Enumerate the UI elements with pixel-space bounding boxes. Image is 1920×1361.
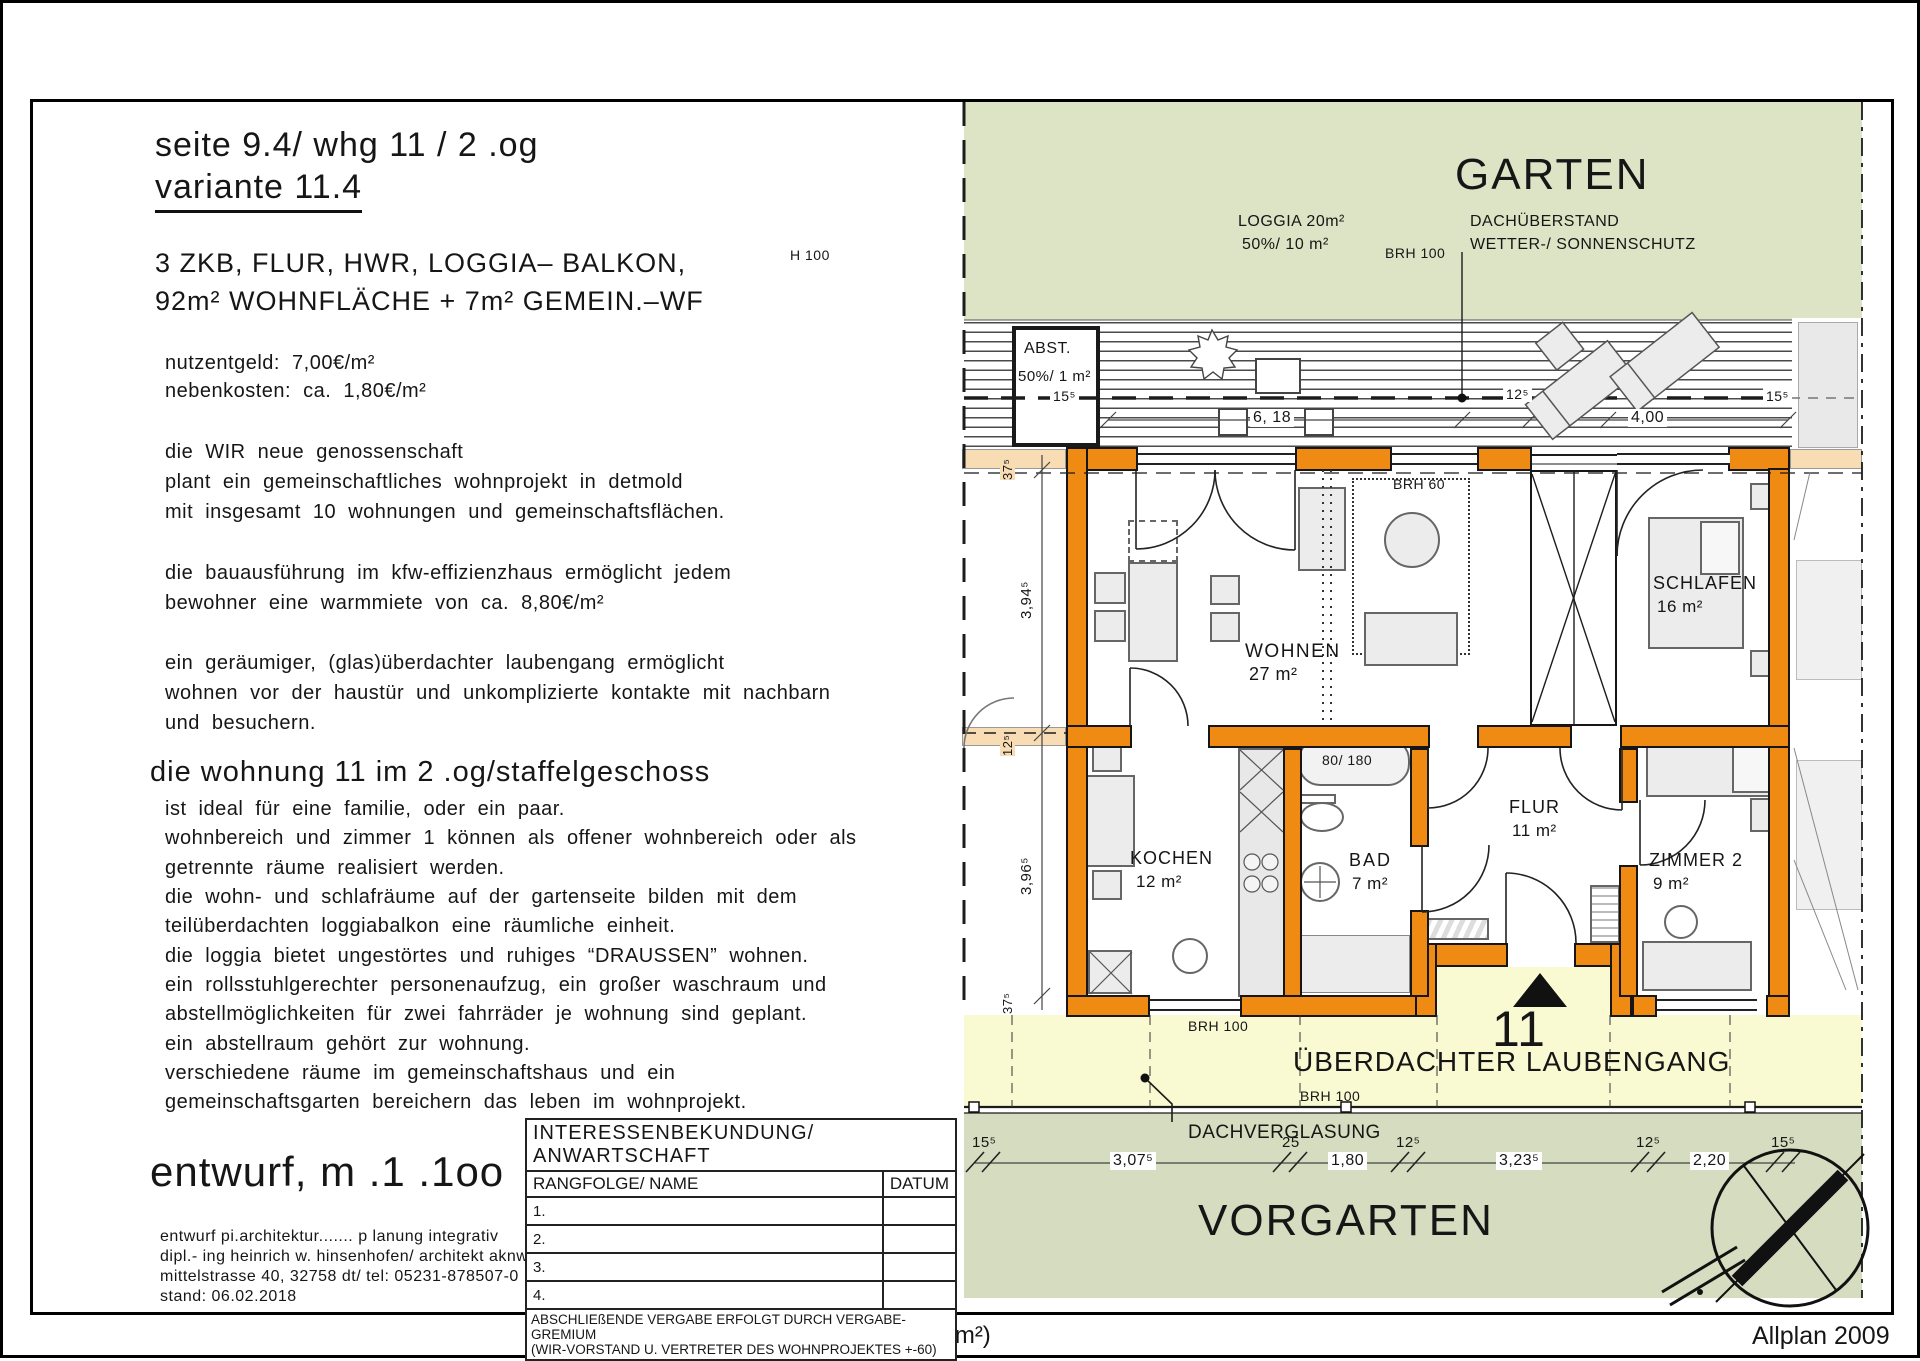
- table-note-1: ABSCHLIEßENDE VERGABE ERFOLGT DURCH VERG…: [531, 1312, 951, 1342]
- dim-label-bottom: 15⁵: [972, 1134, 996, 1151]
- bath-sink: [1300, 862, 1340, 902]
- room-size-zimmer2: 9 m²: [1653, 874, 1689, 894]
- wall: [1295, 447, 1392, 471]
- room-label-zimmer2: ZIMMER 2: [1649, 850, 1743, 871]
- paragraph-line: gemeinschaftsgarten bereichern das leben…: [165, 1091, 747, 1114]
- dim-label-bottom: 12⁵: [1396, 1134, 1420, 1151]
- window: [1657, 999, 1757, 1011]
- software-credit: Allplan 2009: [1752, 1322, 1890, 1351]
- paragraph-line: ein geräumiger, (glas)überdachter lauben…: [165, 652, 725, 675]
- room-label-schlafen: SCHLAFEN: [1653, 573, 1757, 594]
- room-label-kochen: KOCHEN: [1130, 848, 1213, 869]
- dim-label: 4,00: [1628, 409, 1667, 427]
- wall-flur-zimmer2: [1619, 748, 1638, 803]
- sheet-title-line1: seite 9.4/ whg 11 / 2 .og: [155, 126, 539, 165]
- chair-round: [1664, 905, 1698, 939]
- table-note-2: (WIR-VORSTAND U. VERTRETER DES WOHNPROJE…: [531, 1342, 951, 1357]
- paragraph-line: ein abstellraum gehört zur wohnung.: [165, 1033, 530, 1056]
- cost-line: nutzentgeld: 7,00€/m²: [165, 352, 375, 375]
- paragraph-line: ist ideal für eine familie, oder ein paa…: [165, 798, 565, 821]
- window: [1138, 453, 1295, 465]
- dim-label-bottom: 12⁵: [1636, 1134, 1660, 1151]
- side-table: [1210, 612, 1240, 642]
- wardrobe: [1642, 941, 1752, 991]
- brh-label: BRH 100: [1188, 1018, 1248, 1034]
- paragraph-line: mit insgesamt 10 wohnungen und gemeinsch…: [165, 501, 725, 524]
- brh-label: H 100: [790, 247, 830, 263]
- subtitle-line2: 92m² WOHNFLÄCHE + 7m² GEMEIN.–WF: [155, 286, 704, 317]
- dim-label-left: 3,94⁵: [1018, 578, 1035, 622]
- side-table: [1210, 575, 1240, 605]
- kitchen-sink: [1172, 938, 1208, 974]
- date-cell-4[interactable]: [883, 1281, 956, 1309]
- paragraph-line: wohnen vor der haustür und unkompliziert…: [165, 682, 830, 705]
- wall: [1632, 995, 1657, 1017]
- window: [1617, 453, 1730, 465]
- dachueberstand-label2: WETTER-/ SONNENSCHUTZ: [1470, 236, 1696, 254]
- sideboard: [1298, 487, 1346, 571]
- room-label-wohnen: WOHNEN: [1245, 641, 1341, 663]
- interest-table-col2: DATUM: [883, 1171, 956, 1197]
- interest-table-col1: RANGFOLGE/ NAME: [526, 1171, 883, 1197]
- dim-label-left: 37⁵: [1000, 993, 1015, 1014]
- laubengang-label: ÜBERDACHTER LAUBENGANG: [1293, 1046, 1730, 1078]
- sofa: [1128, 562, 1178, 662]
- neighbor-box-mid: [1796, 560, 1862, 680]
- sheet-title-line2: variante 11.4: [155, 168, 362, 213]
- dining-table: [1085, 775, 1135, 867]
- dim-label-bottom: 2,20: [1690, 1152, 1729, 1170]
- paragraph-line: ein rollsstuhlgerechter personenaufzug, …: [165, 974, 827, 997]
- pillow: [1700, 521, 1740, 575]
- coffee-table-dashed: [1128, 520, 1178, 562]
- interest-table: INTERESSENBEKUNDUNG/ ANWARTSCHAFT RANGFO…: [525, 1118, 957, 1361]
- rank-row-2[interactable]: 2.: [526, 1225, 883, 1253]
- plan-sheet: { "page": { "caption": "H/B = 210 / 297 …: [0, 0, 1920, 1358]
- loggia-label2: 50%/ 10 m²: [1242, 236, 1329, 254]
- paragraph-line: die WIR neue genossenschaft: [165, 441, 463, 464]
- window: [1392, 453, 1477, 465]
- date-cell-1[interactable]: [883, 1197, 956, 1225]
- credit-line: dipl.- ing heinrich w. hinsenhofen/ arch…: [160, 1248, 528, 1266]
- room-label-flur: FLUR: [1509, 797, 1560, 818]
- brh-label: BRH 100: [1385, 245, 1445, 261]
- dim-label-bottom: 1,80: [1328, 1152, 1367, 1170]
- room-label-bad: BAD: [1349, 850, 1392, 871]
- window: [1150, 999, 1240, 1011]
- wall-interior: [1477, 725, 1572, 748]
- room-size-schlafen: 16 m²: [1657, 597, 1703, 617]
- room-size-wohnen: 27 m²: [1249, 664, 1298, 685]
- credit-line: stand: 06.02.2018: [160, 1288, 297, 1306]
- garten-label: GARTEN: [1455, 150, 1650, 200]
- paragraph-line: getrennte räume realisiert werden.: [165, 857, 505, 880]
- dim-label-left: 3,96⁵: [1018, 854, 1035, 898]
- cost-line: nebenkosten: ca. 1,80€/m²: [165, 380, 426, 403]
- wall-interior: [1208, 725, 1430, 748]
- toilet-tank: [1296, 794, 1336, 804]
- dim-label-left: 37⁵: [1000, 459, 1015, 480]
- chair: [1092, 870, 1122, 900]
- abst-label2: 50%/ 1 m²: [1018, 368, 1091, 385]
- date-cell-2[interactable]: [883, 1225, 956, 1253]
- subtitle-line1: 3 ZKB, FLUR, HWR, LOGGIA– BALKON,: [155, 248, 686, 279]
- dim-label: 6, 18: [1250, 409, 1294, 427]
- wall-interior: [1620, 725, 1790, 748]
- wall: [1477, 447, 1532, 471]
- paragraph-line: die wohn- und schlafräume auf der garten…: [165, 886, 797, 909]
- paragraph-line: abstellmöglichkeiten für zwei fahrräder …: [165, 1003, 807, 1026]
- deck-planter-left: [1218, 408, 1248, 436]
- rank-row-4[interactable]: 4.: [526, 1281, 883, 1309]
- dim-label-bottom: 15⁵: [1771, 1134, 1795, 1151]
- wall-interior: [1066, 725, 1132, 748]
- dim-label-bottom: 25: [1282, 1134, 1300, 1151]
- wall: [1240, 995, 1417, 1017]
- credit-line: mittelstrasse 40, 32758 dt/ tel: 05231-8…: [160, 1268, 519, 1286]
- stair-elevator-shaft: [1530, 470, 1617, 726]
- section-heading: die wohnung 11 im 2 .og/staffelgeschoss: [150, 756, 710, 789]
- sofa-small: [1364, 612, 1458, 666]
- neighbor-box-low: [1796, 760, 1862, 910]
- rank-row-3[interactable]: 3.: [526, 1253, 883, 1281]
- date-cell-3[interactable]: [883, 1253, 956, 1281]
- bathtub-label: 80/ 180: [1322, 752, 1372, 768]
- round-table: [1384, 512, 1440, 568]
- kitchen-corner-unit: [1088, 950, 1132, 994]
- paragraph-line: die bauausführung im kfw-effizienzhaus e…: [165, 562, 731, 585]
- brh-label: BRH 100: [1300, 1088, 1360, 1104]
- room-size-bad: 7 m²: [1352, 874, 1388, 894]
- loggia-label: LOGGIA 20m²: [1238, 213, 1345, 231]
- wall: [1766, 995, 1790, 1017]
- room-size-flur: 11 m²: [1512, 821, 1557, 841]
- armchair: [1094, 572, 1126, 604]
- wall: [1066, 995, 1150, 1017]
- wall-flur-zimmer2: [1619, 865, 1638, 997]
- dim-label: 12⁵: [1503, 386, 1532, 402]
- paragraph-line: plant ein gemeinschaftliches wohnprojekt…: [165, 471, 683, 494]
- wall-pale-right-top: [1790, 449, 1862, 469]
- shower-floor: [1298, 935, 1410, 993]
- paragraph-line: und besuchern.: [165, 712, 316, 735]
- wall-kochen-bad: [1283, 748, 1302, 997]
- paragraph-line: die loggia bietet ungestörtes und ruhige…: [165, 945, 808, 968]
- radiator: [1590, 885, 1620, 943]
- dachueberstand-label: DACHÜBERSTAND: [1470, 213, 1619, 231]
- paragraph-line: verschiedene räume im gemeinschaftshaus …: [165, 1062, 675, 1085]
- wall-bad-flur: [1410, 748, 1429, 847]
- neighbor-box-top: [1798, 322, 1858, 448]
- credit-line: entwurf pi.architektur....... p lanung i…: [160, 1228, 498, 1246]
- room-size-kochen: 12 m²: [1136, 872, 1182, 892]
- dim-label-bottom: 3,07⁵: [1110, 1152, 1156, 1170]
- deck-planter-right: [1304, 408, 1334, 436]
- kitchen-counter: [1238, 748, 1285, 997]
- vorgarten-label: VORGARTEN: [1198, 1196, 1494, 1246]
- paragraph-line: bewohner eine warmmiete von ca. 8,80€/m²: [165, 592, 604, 615]
- wall-bad-flur: [1410, 910, 1429, 997]
- rank-row-1[interactable]: 1.: [526, 1197, 883, 1225]
- garten-area: [964, 102, 1862, 320]
- toilet: [1300, 802, 1344, 832]
- scale-note: entwurf, m .1 .1oo: [150, 1148, 504, 1196]
- brh60-label: BRH 60: [1393, 476, 1445, 492]
- dim-label: 15⁵: [1763, 388, 1792, 404]
- entry-wardrobe: [1425, 918, 1489, 940]
- abst-label: ABST.: [1024, 340, 1071, 358]
- dim-label-bottom: 3,23⁵: [1496, 1152, 1542, 1170]
- deck-table: [1255, 358, 1301, 394]
- interest-table-title: INTERESSENBEKUNDUNG/ ANWARTSCHAFT: [526, 1119, 956, 1171]
- dim-label-left: 12⁵: [1000, 735, 1015, 756]
- paragraph-line: wohnbereich und zimmer 1 können als offe…: [165, 827, 857, 850]
- paragraph-line: teilüberdachten loggiabalkon eine räumli…: [165, 915, 675, 938]
- armchair: [1094, 610, 1126, 642]
- dim-label: 15⁵: [1050, 388, 1079, 404]
